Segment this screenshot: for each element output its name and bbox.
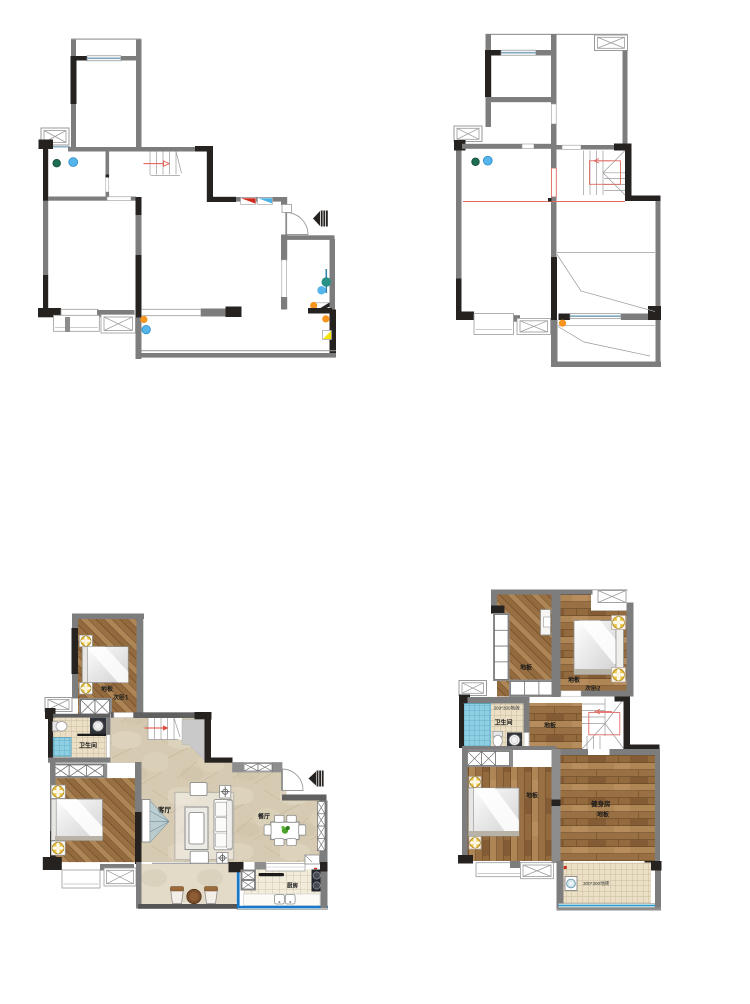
svg-text:地板: 地板 (544, 722, 557, 730)
svg-text:地板: 地板 (597, 811, 610, 819)
svg-text:次卧1: 次卧1 (113, 694, 129, 702)
svg-text:健身房: 健身房 (591, 799, 611, 808)
svg-text:地板: 地板 (526, 792, 539, 800)
svg-text:厨房: 厨房 (287, 882, 299, 890)
svg-text:地板: 地板 (568, 676, 581, 684)
svg-text:地板: 地板 (101, 685, 114, 693)
svg-text:卫生间: 卫生间 (79, 742, 97, 750)
svg-text:300*300地砖: 300*300地砖 (583, 880, 610, 887)
svg-text:300*300地砖: 300*300地砖 (494, 705, 521, 712)
svg-text:地板: 地板 (520, 664, 533, 672)
svg-text:餐厅: 餐厅 (257, 813, 270, 821)
svg-text:卫生间: 卫生间 (495, 719, 513, 727)
